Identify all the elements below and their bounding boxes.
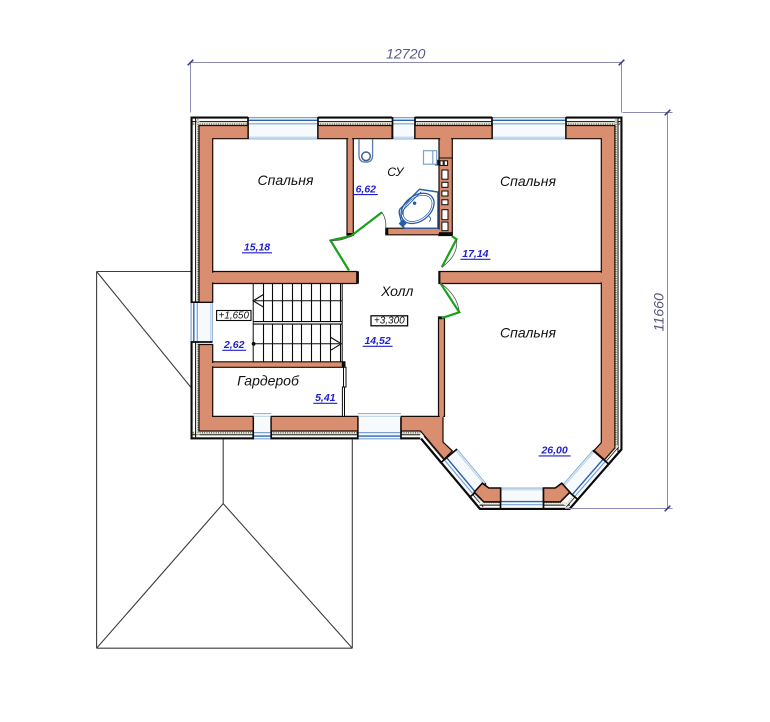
svg-text:5,41: 5,41 (315, 392, 336, 404)
svg-text:2,62: 2,62 (223, 339, 245, 351)
svg-text:Спальня: Спальня (500, 324, 556, 340)
svg-text:14,52: 14,52 (364, 335, 390, 347)
svg-text:+3,300: +3,300 (374, 316, 405, 327)
svg-text:СУ: СУ (387, 165, 404, 179)
svg-text:Холл: Холл (380, 283, 413, 299)
svg-text:12720: 12720 (386, 47, 426, 63)
svg-text:6,62: 6,62 (356, 183, 377, 195)
svg-text:Спальня: Спальня (258, 172, 314, 188)
svg-text:26,00: 26,00 (540, 445, 567, 457)
svg-text:Гардероб: Гардероб (237, 372, 300, 388)
svg-text:17,14: 17,14 (462, 248, 488, 260)
svg-text:15,18: 15,18 (244, 242, 270, 254)
svg-text:Спальня: Спальня (500, 173, 556, 189)
svg-text:11660: 11660 (652, 293, 668, 332)
svg-text:+1,650: +1,650 (219, 310, 250, 321)
